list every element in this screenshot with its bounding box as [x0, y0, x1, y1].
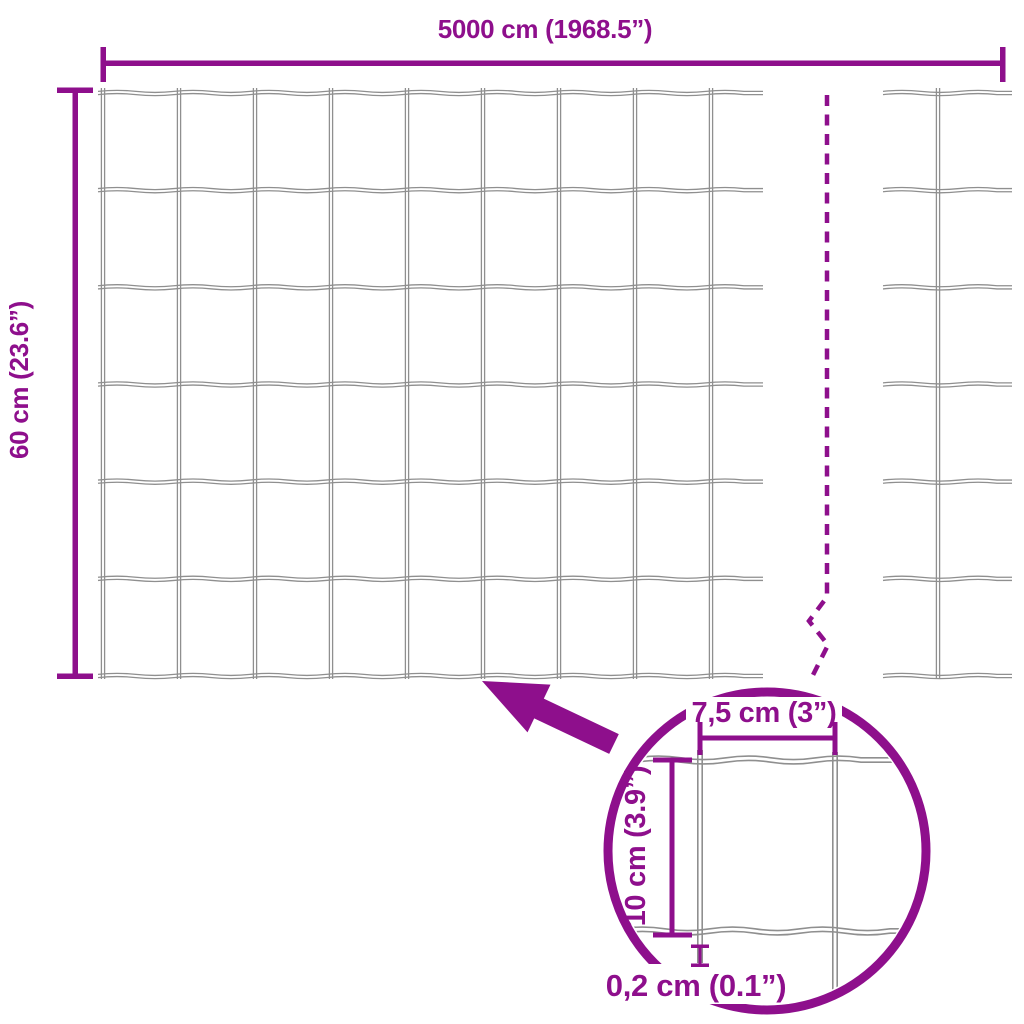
width-dimension-left-tick	[101, 47, 107, 82]
mesh-cell-height-dimension: 10 cm (3.9”)	[620, 758, 692, 938]
width-dimension-label: 5000 cm (1968.5”)	[438, 14, 653, 44]
mesh-width-dimension-line	[700, 736, 835, 741]
mesh-height-bottom-tick	[653, 933, 692, 938]
wire-thickness-label: 0,2 cm (0.1”)	[606, 968, 786, 1003]
mesh-height-dimension-line	[670, 760, 675, 935]
mesh-height-top-tick	[653, 758, 692, 763]
wire-thickness-connector	[699, 946, 702, 965]
fence-dimension-diagram: 5000 cm (1968.5”) 60 cm (23.6”) 7,5 cm (…	[0, 0, 1024, 1024]
break-dashed-line-icon	[809, 95, 828, 679]
wire-mesh-detail	[620, 750, 912, 992]
wire-thickness-dimension: 0,2 cm (0.1”)	[606, 945, 786, 1004]
diagram-canvas: 5000 cm (1968.5”) 60 cm (23.6”) 7,5 cm (…	[0, 0, 1024, 1024]
wire-mesh-main	[98, 88, 763, 679]
arrow-pointer-icon	[482, 681, 619, 754]
height-dimension-label: 60 cm (23.6”)	[4, 301, 34, 459]
height-dimension: 60 cm (23.6”)	[4, 88, 93, 680]
width-dimension: 5000 cm (1968.5”)	[101, 14, 1006, 82]
width-dimension-right-tick	[1000, 47, 1006, 82]
width-dimension-line	[101, 61, 1005, 67]
height-dimension-top-tick	[57, 88, 93, 94]
mesh-cell-height-label: 10 cm (3.9”)	[620, 766, 652, 927]
height-dimension-bottom-tick	[57, 674, 93, 680]
wire-mesh-right-section	[883, 88, 1012, 679]
mesh-cell-width-label: 7,5 cm (3”)	[692, 697, 837, 729]
mesh-cell-width-dimension: 7,5 cm (3”)	[692, 697, 838, 755]
height-dimension-line	[73, 90, 79, 676]
